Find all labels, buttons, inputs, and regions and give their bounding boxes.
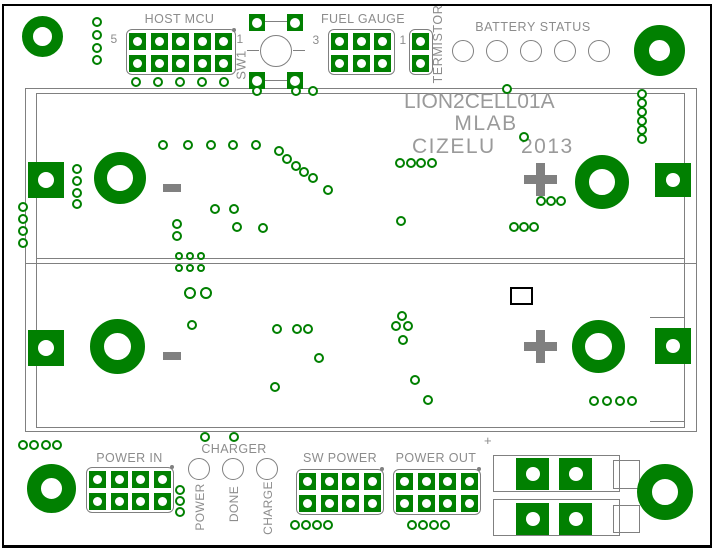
host-mcu-header-pad-hole [133, 59, 142, 68]
battery-contact-ring [90, 319, 145, 374]
sw-power-header-pad-hole [303, 477, 312, 486]
via [200, 432, 210, 442]
power-out-header-pad [439, 473, 456, 490]
charger-charge-led-label: CHARGE [262, 481, 274, 535]
power-in-label: POWER IN [86, 452, 173, 465]
host-mcu-header-pad [129, 55, 146, 72]
via [206, 140, 216, 150]
sw-power-header-pad-hole [368, 477, 377, 486]
via [323, 185, 333, 195]
power-out-header-pad-hole [400, 499, 409, 508]
fuel-gauge-header-pad [374, 33, 391, 50]
terminal-pad [516, 503, 549, 535]
sw-power-header-pad [364, 473, 381, 490]
via [290, 520, 300, 530]
via [229, 432, 239, 442]
via [186, 252, 194, 260]
sw-power-header-pad [364, 495, 381, 512]
battery2-minus-symbol [163, 352, 181, 360]
via [398, 335, 408, 345]
via [602, 396, 612, 406]
battery-status-led [486, 40, 508, 62]
via [397, 311, 407, 321]
via [519, 222, 529, 232]
termistor-header-pad-hole [416, 59, 425, 68]
via [29, 440, 39, 450]
via [92, 55, 102, 65]
via [175, 252, 183, 260]
via [391, 321, 401, 331]
sw-power-header-pad [321, 473, 338, 490]
via [72, 199, 82, 209]
power-out-header-pad [418, 495, 435, 512]
sw-power-header-pad [299, 495, 316, 512]
via [301, 520, 311, 530]
board-subtitle: MLAB [416, 113, 556, 134]
power-out-header-pad-hole [400, 477, 409, 486]
via [427, 158, 437, 168]
sw1-label: SW1 [235, 50, 248, 79]
fuel-gauge-header-pad-hole [357, 59, 366, 68]
terminal-pad-hole [569, 467, 583, 481]
battery1-neg-pad-hole [38, 172, 54, 188]
via [291, 86, 301, 96]
via [52, 440, 62, 450]
power-in-header-pad-hole [93, 497, 102, 506]
charger-done-led-label: DONE [228, 486, 240, 522]
battery1-neg-pad [28, 162, 64, 198]
host-mcu-header-pad [129, 33, 146, 50]
battery-contact-ring [572, 320, 625, 373]
sw-power-header-pad-hole [346, 499, 355, 508]
power-in-header-pad-hole [158, 475, 167, 484]
battery2-pos-pad [655, 328, 691, 364]
via [131, 77, 141, 87]
via [18, 226, 28, 236]
host-mcu-header-pad [194, 55, 211, 72]
power-out-header-pad [396, 473, 413, 490]
power-out-header-pad [396, 495, 413, 512]
battery2-neg-pad-hole [38, 340, 54, 356]
via [440, 520, 450, 530]
fuel-gauge-header-pad-hole [335, 59, 344, 68]
power-in-header-pad [132, 493, 149, 510]
via [210, 204, 220, 214]
via [429, 520, 439, 530]
via [229, 204, 239, 214]
battery-status-label: BATTERY STATUS [453, 21, 613, 34]
via [92, 30, 102, 40]
fuel-gauge-header-pad [353, 33, 370, 50]
battery-status-led [452, 40, 474, 62]
terminal-tab-row2 [613, 505, 640, 533]
power-in-header-pad-hole [136, 475, 145, 484]
via [187, 320, 197, 330]
via [407, 520, 417, 530]
power-out-header-pad-hole [465, 499, 474, 508]
power-out-header-pad-hole [465, 477, 474, 486]
power-out-header-pad-hole [443, 477, 452, 486]
host-mcu-header-pad-hole [176, 59, 185, 68]
silk-line [650, 421, 684, 422]
fuel-gauge-header-pad [331, 55, 348, 72]
terminal-pad [559, 503, 592, 535]
terminal-pad-hole [526, 512, 540, 526]
via [18, 238, 28, 248]
power-out-header-pad-hole [422, 477, 431, 486]
via [72, 188, 82, 198]
battery1-plus-symbol [524, 175, 557, 184]
board-year: 2013 [521, 136, 574, 157]
host-mcu-pin1-label: 1 [234, 33, 246, 45]
power-out-header-pin1-dot [477, 467, 481, 471]
terminal-block-row1 [493, 455, 620, 492]
fuel-gauge-header-pad-hole [335, 37, 344, 46]
via [396, 216, 406, 226]
battery-status-led [554, 40, 576, 62]
battery2-plus-symbol [524, 342, 557, 351]
battery2-neg-pad [28, 330, 64, 366]
sw-power-header-pad [321, 495, 338, 512]
power-in-header-pin1-dot [170, 465, 174, 469]
power-in-header-pad [111, 471, 128, 488]
sw1-pad [249, 14, 265, 31]
power-out-header-pad-hole [422, 499, 431, 508]
via [175, 77, 185, 87]
power-in-header-pad-hole [158, 497, 167, 506]
via [175, 507, 185, 517]
sw-power-header-pad-hole [325, 499, 334, 508]
via [175, 485, 185, 495]
charger-led-done [222, 458, 244, 480]
via [546, 196, 556, 206]
termistor-header-pad [412, 33, 429, 50]
power-in-header-pad-hole [93, 475, 102, 484]
via [410, 375, 420, 385]
silk-line [650, 317, 684, 318]
power-out-header-pad [461, 495, 478, 512]
board-title: LION2CELL01A [404, 91, 545, 112]
power-in-header-pad-hole [115, 497, 124, 506]
via [158, 140, 168, 150]
fuel-gauge-label: FUEL GAUGE [318, 13, 408, 26]
via [519, 132, 529, 142]
fuel-gauge-header-pad [353, 55, 370, 72]
silk-line [247, 50, 259, 51]
fuel-gauge-pin3-label: 3 [310, 34, 322, 46]
host-mcu-header-pin1-dot [232, 28, 236, 32]
fuel-gauge-header-pad [331, 33, 348, 50]
sw-power-header-pad-hole [368, 499, 377, 508]
battery1-pos-pad-hole [666, 173, 680, 187]
via [323, 520, 333, 530]
via [184, 287, 196, 299]
termistor-header-pad [412, 55, 429, 72]
host-mcu-header-pad-hole [219, 37, 228, 46]
via [308, 173, 318, 183]
host-mcu-header-pad [172, 33, 189, 50]
via [272, 324, 282, 334]
via [314, 353, 324, 363]
host-mcu-header-pad [215, 55, 232, 72]
sw1-pad [287, 14, 303, 31]
pcb-board: HOST MCU 5 1 SW1 FUEL GAUGE 3 1 TERMISTO… [0, 0, 712, 548]
power-in-header-pad [154, 493, 171, 510]
mount-hole [634, 25, 685, 76]
via [72, 164, 82, 174]
terminal-pad-hole [569, 512, 583, 526]
power-out-header-pad-hole [443, 499, 452, 508]
charger-label: CHARGER [184, 443, 284, 456]
via [172, 231, 182, 241]
board-author: CIZELU [412, 136, 496, 157]
host-mcu-header-pad [151, 55, 168, 72]
host-mcu-header-pad-hole [219, 59, 228, 68]
via [312, 520, 322, 530]
via [186, 264, 194, 272]
silk-line [265, 80, 289, 81]
host-mcu-header-pad [215, 33, 232, 50]
host-mcu-label: HOST MCU [126, 13, 233, 26]
via [18, 214, 28, 224]
sw1-pad-hole [252, 76, 262, 86]
power-in-header-pad [132, 471, 149, 488]
sw-power-header-pad-hole [325, 477, 334, 486]
via [197, 252, 205, 260]
via [308, 86, 318, 96]
silk-line [293, 50, 305, 51]
via [200, 287, 212, 299]
via [232, 222, 242, 232]
via [502, 84, 512, 94]
via [282, 154, 292, 164]
mount-hole [22, 16, 63, 57]
power-out-label: POWER OUT [392, 452, 480, 465]
sw-power-header-pad [299, 473, 316, 490]
host-mcu-header-pad [151, 33, 168, 50]
termistor-header-pad-hole [416, 37, 425, 46]
battery1-pos-pad [655, 163, 691, 197]
via [197, 264, 205, 272]
via [418, 520, 428, 530]
via [92, 17, 102, 27]
terminal-plus-label: + [481, 434, 495, 447]
via [251, 140, 261, 150]
sw-power-label: SW POWER [296, 452, 384, 465]
via [395, 158, 405, 168]
via [627, 396, 637, 406]
via [18, 202, 28, 212]
power-in-header-pad [89, 493, 106, 510]
via [270, 382, 280, 392]
via [252, 86, 262, 96]
via [556, 196, 566, 206]
via [219, 77, 229, 87]
silk-line [265, 21, 289, 22]
via [197, 77, 207, 87]
charger-led-power [188, 458, 210, 480]
via [175, 264, 183, 272]
sw-power-header-pin1-dot [380, 467, 384, 471]
power-in-header-pad [154, 471, 171, 488]
via [303, 324, 313, 334]
via [615, 396, 625, 406]
silk-line [36, 258, 685, 259]
battery-holder-inner [36, 93, 685, 428]
via [423, 395, 433, 405]
sw1-pad-hole [252, 18, 262, 28]
host-mcu-header-pad-hole [198, 59, 207, 68]
mount-hole [27, 464, 76, 513]
component-outline [510, 287, 533, 305]
sw-power-header-pad [342, 495, 359, 512]
fuel-gauge-header-pad-hole [378, 59, 387, 68]
via [92, 43, 102, 53]
terminal-tab-row1 [613, 460, 640, 489]
fuel-gauge-header-pad-hole [378, 37, 387, 46]
battery2-pos-pad-hole [666, 339, 680, 353]
battery-status-led [588, 40, 610, 62]
via [228, 140, 238, 150]
via [41, 440, 51, 450]
via [403, 321, 413, 331]
silk-line [25, 263, 697, 264]
battery1-minus-symbol [163, 184, 181, 192]
via [536, 196, 546, 206]
battery-contact-ring [575, 155, 629, 209]
terminal-pad [559, 458, 592, 490]
mount-hole [637, 464, 693, 520]
host-mcu-header-pad-hole [198, 37, 207, 46]
sw1-pad-hole [290, 76, 300, 86]
host-mcu-pin5-label: 5 [108, 33, 120, 45]
via [18, 440, 28, 450]
via [529, 222, 539, 232]
termistor-label: TERMISTOR [432, 5, 445, 84]
via [153, 77, 163, 87]
via [292, 324, 302, 334]
host-mcu-header-pad [194, 33, 211, 50]
power-in-header-pad-hole [115, 475, 124, 484]
terminal-pad [516, 458, 549, 490]
via [637, 134, 647, 144]
terminal-pad-hole [526, 467, 540, 481]
host-mcu-header-pad-hole [176, 37, 185, 46]
sw1-button [260, 35, 292, 67]
host-mcu-header-pad-hole [155, 59, 164, 68]
via [175, 496, 185, 506]
fuel-gauge-header-pad [374, 55, 391, 72]
battery-contact-ring [94, 152, 146, 204]
via [258, 223, 268, 233]
via [589, 396, 599, 406]
sw1-pad-hole [290, 18, 300, 28]
sw-power-header-pad-hole [346, 477, 355, 486]
fuel-gauge-pin1-label: 1 [397, 34, 409, 46]
power-out-header-pad [439, 495, 456, 512]
power-out-header-pad [461, 473, 478, 490]
via [416, 158, 426, 168]
power-in-header-pad [111, 493, 128, 510]
fuel-gauge-header-pad-hole [357, 37, 366, 46]
sw-power-header-pad-hole [303, 499, 312, 508]
charger-power-led-label: POWER [194, 483, 206, 530]
sw-power-header-pad [342, 473, 359, 490]
power-in-header-pad [89, 471, 106, 488]
host-mcu-header-pad [172, 55, 189, 72]
via [509, 222, 519, 232]
via [406, 158, 416, 168]
via [183, 140, 193, 150]
host-mcu-header-pad-hole [155, 37, 164, 46]
power-out-header-pad [418, 473, 435, 490]
host-mcu-header-pad-hole [133, 37, 142, 46]
charger-led-charge [256, 458, 278, 480]
terminal-block-row2 [493, 499, 620, 536]
via [172, 219, 182, 229]
battery-status-led [520, 40, 542, 62]
power-in-header-pad-hole [136, 497, 145, 506]
via [72, 176, 82, 186]
